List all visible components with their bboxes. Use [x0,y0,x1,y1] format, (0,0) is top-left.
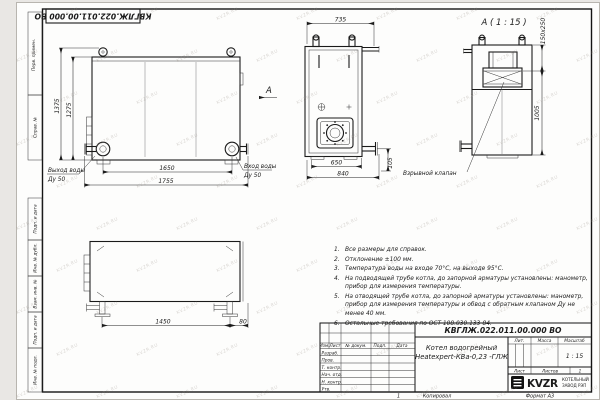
stamp-inv-podl: Инв. № подл. [33,355,39,385]
row-utv: Утв. [322,387,331,393]
col-doc: № докум. [344,343,366,349]
footer-copy-label: Копировал [423,394,452,400]
sheets-value: 1 [579,369,582,375]
view-arrow-label: А [265,86,272,96]
stamp-podp-data-2: Подп. и дата [33,315,39,345]
left-border-stamps: Перв. примен. Справ. № Подп. и дата Инв.… [28,12,42,392]
detail-view-a: А ( 1 : 15 ) [403,18,547,177]
company-line2: ЗАВОД РЭП [562,383,586,388]
col-izm: Изм. [319,343,329,349]
note-text: Остальные требования по ОСТ 108.030.133-… [345,320,592,329]
top-doc-number-box: КВГЛЖ.022.011.00.000 ВО [34,9,152,23]
dim-front-width-inner: 1650 [159,165,174,172]
note-item: 2. Отклонение ±100 мм. [334,256,592,265]
view-arrow-A: А [259,86,277,98]
dim-side-bottom-inner: 650 [331,160,343,167]
note-item: 6. Остальные требования по ОСТ 108.030.1… [334,320,592,329]
note-number: 3. [334,265,345,274]
outlet-dn-label: Ду 50 [47,177,65,183]
side-pipe [362,142,378,156]
dim-side-right: 105 [387,157,394,169]
detail-title: А ( 1 : 15 ) [480,18,526,28]
sheets-label: Листов [541,369,559,375]
side-view: 735 650 840 105 [305,17,394,181]
col-data: Дата [395,343,407,349]
dim-detail-height: 1005 [534,105,541,120]
notes-list: 1. Все размеры для справок. 2. Отклонени… [334,246,592,329]
product-name-line1: Котел водогрейный [426,344,498,352]
title-block: КВГЛЖ.022.011.00.000 ВО Котел водогрейны… [319,323,591,400]
explosion-valve [483,68,522,87]
dim-valve-size: 150х250 [540,18,547,45]
note-item: 3. Температура воды на входе 70°С, на вы… [334,265,592,274]
explosion-valve-label: Взрывной клапан [403,171,457,177]
dim-plan-offset: 80 [239,319,247,326]
logo-text: KVZR [527,378,558,390]
inlet-dn-label: Ду 50 [243,173,261,179]
inlet-pipe [225,142,248,156]
right-foot [214,302,238,317]
ladder-bracket-plan [84,255,90,291]
note-number: 4. [334,275,345,292]
dim-plan-width: 1450 [155,319,170,326]
drawing-canvas: КВГЛЖ.022.011.00.000 ВО Перв. примен. Сп… [0,0,600,400]
stamp-perv-primen: Перв. примен. [31,39,37,71]
mass-label: Масса [538,338,552,344]
stamp-sprav-no: Справ. № [33,117,39,138]
note-text: Температура воды на входе 70°С, на выход… [345,265,592,274]
col-list: Лист [329,343,341,349]
note-text: На отводящей трубе котла, до запорной ар… [345,293,592,319]
note-text: На подводящей трубе котла, до запорной а… [345,275,592,292]
lit-label: Лит. [514,338,525,344]
company-line1: КОТЕЛЬНЫЙ [562,377,589,382]
note-number: 1. [334,246,345,255]
scale-label: Масштаб [564,338,585,344]
row-nachotd: Нач. отд. [322,372,343,378]
note-text: Все размеры для справок. [345,246,592,255]
sheet-label: Лист [513,369,525,375]
drawing-sheet: КВГЛЖ.022.011.00.000 ВО Перв. примен. Сп… [0,0,600,400]
dim-front-height-total: 1375 [54,98,61,113]
col-podp: Подп. [373,343,386,349]
stamp-vzam-inv: Взам. инв. № [33,279,39,309]
note-item: 1. Все размеры для справок. [334,246,592,255]
note-item: 5. На отводящей трубе котла, до запорной… [334,293,592,319]
top-view: 1450 80 [84,242,248,329]
note-number: 6. [334,320,345,329]
footer-zone: 1 [397,394,400,400]
row-nkontr: Н. контр. [322,379,343,385]
row-tkontr: Т. контр. [322,365,342,371]
ladder-bracket [87,117,93,155]
manometer-port-icon [318,104,325,111]
front-view: 1375 1275 1650 1755 Выход воды Ду 50 Вхо… [47,48,277,188]
note-item: 4. На подводящей трубе котла, до запорно… [334,275,592,292]
row-razrab: Разраб. [322,350,339,356]
row-prov: Пров. [322,358,335,364]
dim-front-height-inner: 1275 [66,102,73,117]
stamp-podp-data-1: Подп. и дата [33,204,39,234]
product-name-line2: Heatexpert-КВа-0,23 -ГЛЖ [415,353,508,361]
dim-front-width-total: 1755 [158,178,173,185]
note-number: 5. [334,293,345,319]
burner-flange [317,118,353,148]
footer-format-label: Формат А3 [526,394,554,400]
kvzr-logo-icon [511,376,524,389]
note-number: 2. [334,256,345,265]
center-mark-icon [347,105,352,110]
top-doc-number: КВГЛЖ.022.011.00.000 ВО [34,12,152,21]
left-foot [87,302,111,317]
stamp-inv-dubl: Инв. № дубл. [33,243,39,272]
note-text: Отклонение ±100 мм. [345,256,592,265]
dim-side-bottom-total: 840 [337,171,349,178]
scale-value: 1 : 15 [566,353,583,360]
inlet-label: Вход воды [244,164,277,170]
dim-side-top: 735 [335,17,347,24]
lifting-lug-icon [99,48,235,56]
